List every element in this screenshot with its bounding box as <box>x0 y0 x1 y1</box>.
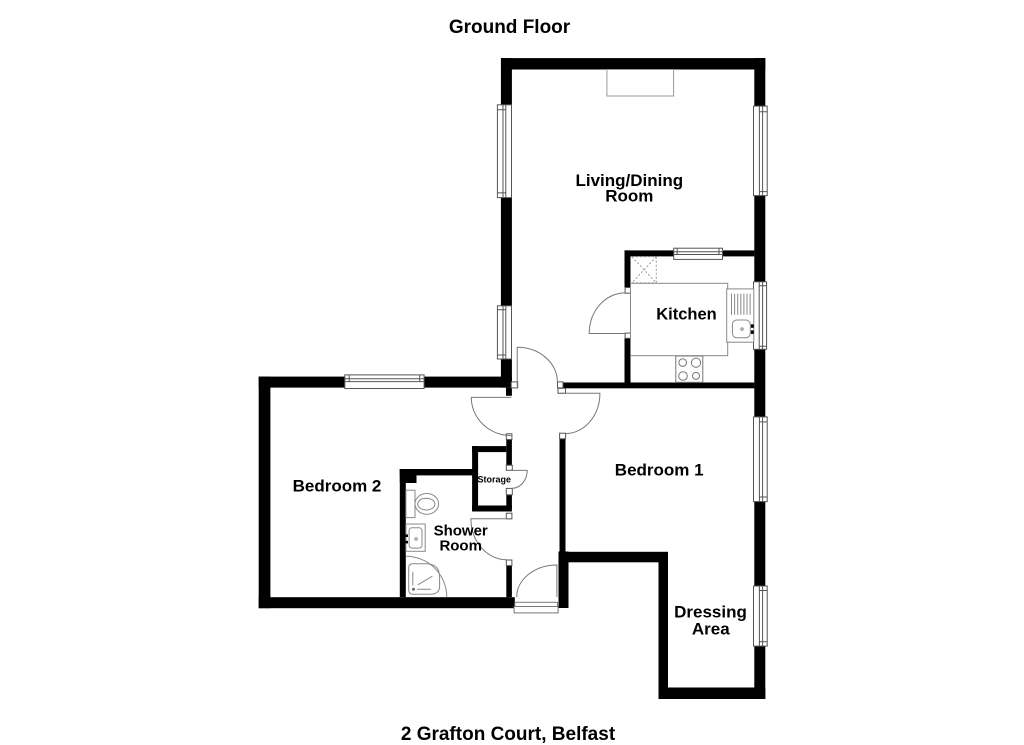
svg-text:2 Grafton Court, Belfast: 2 Grafton Court, Belfast <box>401 724 616 745</box>
svg-text:Area: Area <box>692 620 730 639</box>
svg-text:Room: Room <box>439 538 482 555</box>
svg-text:Bedroom 1: Bedroom 1 <box>615 461 704 480</box>
svg-text:Bedroom 2: Bedroom 2 <box>293 477 382 496</box>
svg-text:Ground Floor: Ground Floor <box>449 17 571 38</box>
svg-text:Room: Room <box>605 186 653 205</box>
svg-text:Storage: Storage <box>478 475 512 485</box>
svg-text:Kitchen: Kitchen <box>656 306 717 324</box>
